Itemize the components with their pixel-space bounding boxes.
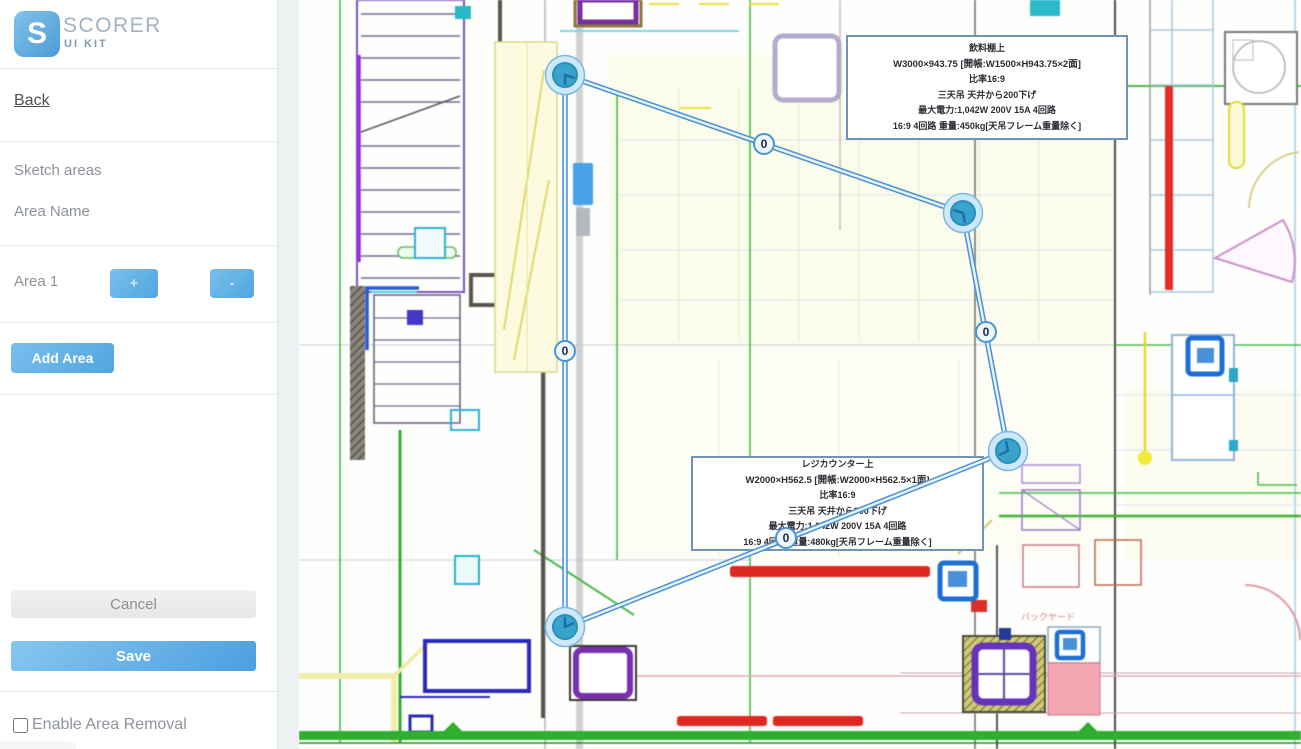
logo-letter: S xyxy=(27,17,47,51)
edge-label-badge: 0 xyxy=(554,340,576,362)
cancel-button[interactable]: Cancel xyxy=(11,590,256,618)
sidebar-gutter xyxy=(278,0,299,749)
divider xyxy=(0,322,277,323)
polygon-vertex-handle[interactable] xyxy=(944,194,983,233)
divider xyxy=(0,245,277,246)
divider xyxy=(0,394,277,395)
sketch-areas-heading: Sketch areas xyxy=(14,162,102,179)
cutoff-button[interactable] xyxy=(0,741,76,749)
save-button[interactable]: Save xyxy=(11,641,256,671)
enable-area-removal-label: Enable Area Removal xyxy=(32,716,187,734)
area-name-heading: Area Name xyxy=(14,203,90,220)
add-area-button[interactable]: Add Area xyxy=(11,343,114,373)
app-title: SCORER xyxy=(63,14,162,38)
enable-area-removal-row: Enable Area Removal xyxy=(13,716,187,734)
divider xyxy=(0,141,277,142)
enable-area-removal-checkbox[interactable] xyxy=(13,718,28,733)
edge-label-badge: 0 xyxy=(753,133,775,155)
edge-label-badge: 0 xyxy=(775,527,797,549)
area-row-name: Area 1 xyxy=(14,273,58,290)
scorer-logo-icon: S xyxy=(14,11,60,57)
polygon-vertex-handle[interactable] xyxy=(989,432,1028,471)
area-decrement-button[interactable]: - xyxy=(210,269,254,298)
divider xyxy=(0,68,277,69)
sketch-polygon-overlay xyxy=(299,0,1301,749)
scorer-sketch-areas-page: S SCORER UI KIT Back Sketch areas Area N… xyxy=(0,0,1301,749)
area-increment-button[interactable]: + xyxy=(110,269,158,298)
sidebar: S SCORER UI KIT Back Sketch areas Area N… xyxy=(0,0,278,749)
edge-label-badge: 0 xyxy=(975,321,997,343)
polygon-vertex-handle[interactable] xyxy=(546,608,585,647)
back-link[interactable]: Back xyxy=(14,92,50,110)
polygon-vertex-handle[interactable] xyxy=(546,56,585,95)
floor-plan-canvas[interactable]: バックヤード 飲料棚上 W3000×943.75 [開帳:W1500×H943.… xyxy=(299,0,1301,749)
app-subtitle: UI KIT xyxy=(64,38,108,50)
divider xyxy=(0,691,277,692)
